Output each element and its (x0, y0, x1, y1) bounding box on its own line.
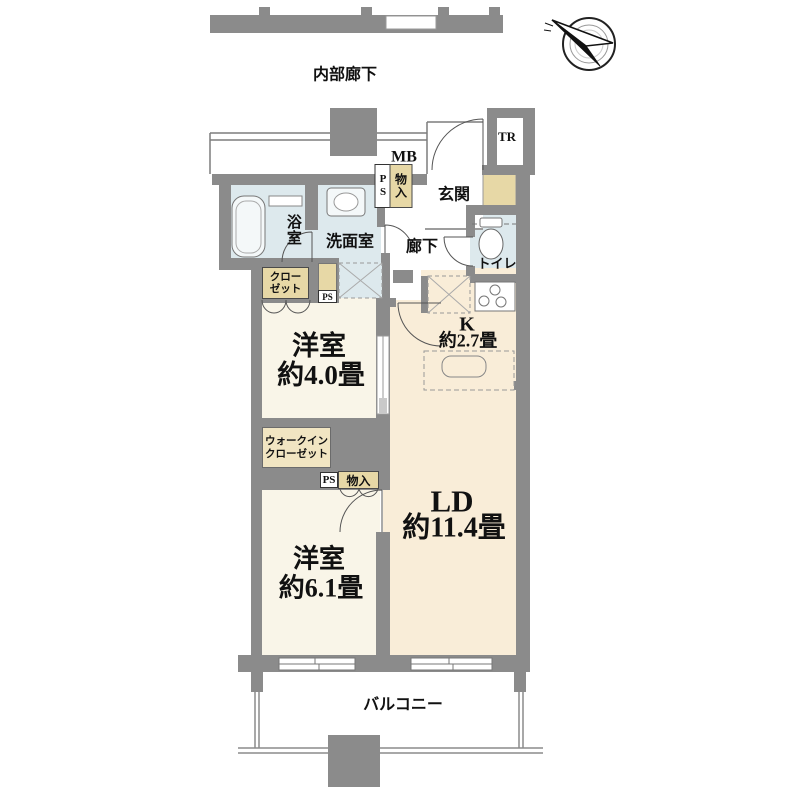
corridor-wall (210, 15, 503, 33)
bath-wash-wall (305, 183, 318, 230)
floor-plan-drawing (0, 0, 800, 800)
wall-bump (259, 7, 270, 16)
floor-plan: 内部廊下 MB TR 玄関 PS 物入 浴室 洗面室 廊下 トイレ クローゼット… (0, 0, 800, 800)
closet-label-line1: クロー (270, 271, 302, 283)
ps-shaft-mid-label: PS (318, 290, 337, 303)
hall-kitchen-wall (393, 270, 413, 283)
toilet-label: トイレ (477, 257, 516, 271)
tr-top-wall (495, 108, 535, 118)
living-dining-size-label: 約11.4畳 (402, 513, 505, 542)
ldk-floor (383, 268, 516, 660)
toilet-bowl (479, 229, 503, 259)
storage-upper: 物入 (390, 164, 413, 208)
left-wall-upper (219, 174, 231, 270)
pillar (330, 108, 377, 156)
entrance-label: 玄関 (438, 188, 470, 205)
hallway-label: 廊下 (406, 240, 438, 257)
bathroom-label: 浴室 (284, 214, 300, 246)
tr-label: TR (498, 130, 516, 144)
ps-shaft-mid-box (318, 263, 337, 291)
bedroom2-ld-wall (376, 532, 390, 660)
porch-boundary-line (427, 122, 483, 174)
toilet-left-wall-a (466, 205, 475, 237)
kitchen-counter (424, 351, 514, 390)
toilet-tank (480, 218, 502, 227)
bedroom1-size-label: 約4.0畳 (277, 361, 365, 389)
bedroom2-size-label: 約6.1畳 (279, 574, 364, 601)
sliding-door (377, 336, 389, 414)
washroom-label: 洗面室 (326, 235, 374, 252)
right-wall-stub (514, 672, 526, 692)
walk-in-closet-box: ウォークインクローゼット (262, 427, 331, 468)
storage-lower: 物入 (338, 471, 379, 489)
wic-label-line1: ウォークイン (265, 435, 328, 447)
tr-left-wall (487, 108, 497, 168)
balcony-rails (238, 672, 543, 787)
balcony-pillar (328, 735, 380, 787)
corridor-wall-opening (386, 16, 436, 29)
right-wall (516, 172, 530, 672)
wall-bump (438, 7, 449, 16)
wall-bump (489, 7, 500, 16)
corridor-label: 内部廊下 (313, 68, 377, 85)
sliding-door-leaf (379, 398, 387, 414)
closet-label-line2: ゼット (270, 283, 302, 295)
tr-bottom-wall (482, 165, 530, 175)
kitchen-size-label: 約2.7畳 (439, 332, 498, 351)
closet-box: クローゼット (262, 267, 309, 299)
bath-counter (269, 196, 302, 206)
north-compass-icon (544, 18, 615, 70)
wall-bump (361, 7, 372, 16)
tr-right-wall (523, 108, 535, 175)
bedroom1-label: 洋室 (292, 332, 346, 360)
bedroom2-label: 洋室 (293, 545, 345, 572)
left-wall-stub (251, 672, 263, 692)
compass-tick (544, 23, 553, 31)
ps-shaft-lower: PS (320, 472, 338, 488)
wic-label-line2: クローゼット (265, 448, 328, 460)
wash-basin-bowl (334, 193, 358, 211)
entrance-door (432, 119, 483, 170)
balcony-label: バルコニー (363, 698, 443, 715)
